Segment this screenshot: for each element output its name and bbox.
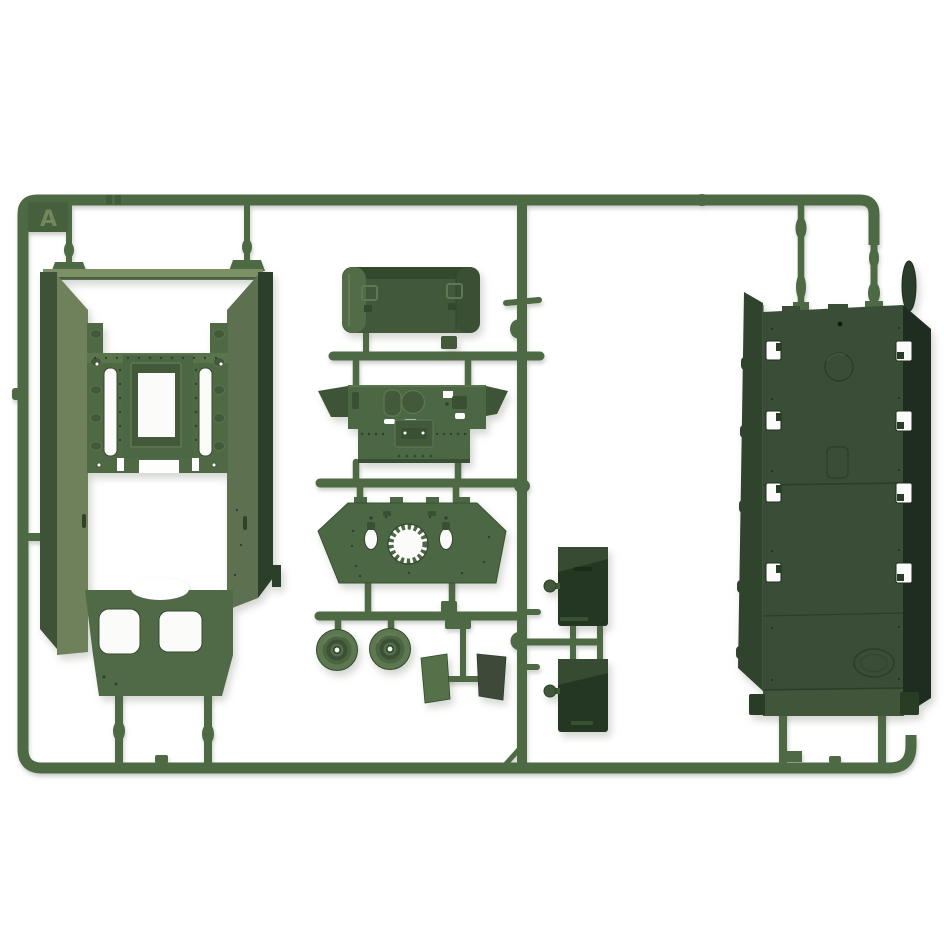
tub-right-wall-tab: [272, 565, 281, 587]
panel-endcap-left: [749, 694, 765, 715]
round-hatch: [402, 391, 425, 414]
panel-pinhole: [838, 322, 843, 327]
tub-left-outer-wall: [40, 272, 57, 649]
panel-right-wall: [903, 305, 931, 716]
deck-slot-left: [104, 368, 117, 456]
sprue-photo: A: [0, 0, 944, 944]
panel-face: [763, 305, 903, 716]
panel-bottom-band: [763, 688, 903, 716]
belly-panel: [736, 261, 931, 716]
hull-tub: [40, 269, 281, 696]
fuel-tank-upper: [544, 547, 608, 626]
glacis-plate: [318, 385, 508, 463]
panel-endcap-right: [900, 692, 919, 715]
tub-left-wall-face: [57, 275, 88, 655]
wheel-hub-hole: [387, 646, 393, 652]
idler-disc: [902, 261, 916, 311]
stowage-gate-block: [441, 336, 457, 349]
deck-oval-left: [365, 529, 378, 550]
fuel-tank-lower: [544, 659, 608, 732]
deck-slot-right: [199, 368, 212, 456]
tub-right-wall-face: [227, 275, 258, 610]
mount-opening: [138, 373, 175, 437]
hatch-cutout-left: [99, 609, 140, 654]
glacis-wing-right: [486, 386, 508, 416]
mud-flap-right: [477, 654, 506, 700]
road-wheel-2: [370, 629, 411, 670]
turret-deck: [318, 497, 506, 583]
tub-right-outer-wall: [258, 272, 273, 598]
panel-flange: [738, 292, 763, 691]
sprue-letter-tab: A: [28, 202, 68, 232]
deck-oval-right: [440, 529, 453, 550]
photo-canvas: A: [0, 0, 944, 944]
wheel-hub-hole: [334, 647, 340, 653]
mud-flap-left: [421, 654, 450, 703]
glacis-wing-left: [318, 386, 348, 417]
driver-hatch: [384, 390, 401, 416]
sprue-letter: A: [40, 207, 57, 232]
stowage-box: [342, 267, 480, 349]
road-wheel-1: [317, 630, 358, 671]
tank-knob: [544, 580, 556, 592]
stowage-cap-right: [456, 267, 480, 333]
tank-knob: [544, 685, 556, 697]
axle-notch: [131, 578, 189, 600]
hatch-cutout-right: [159, 611, 202, 652]
